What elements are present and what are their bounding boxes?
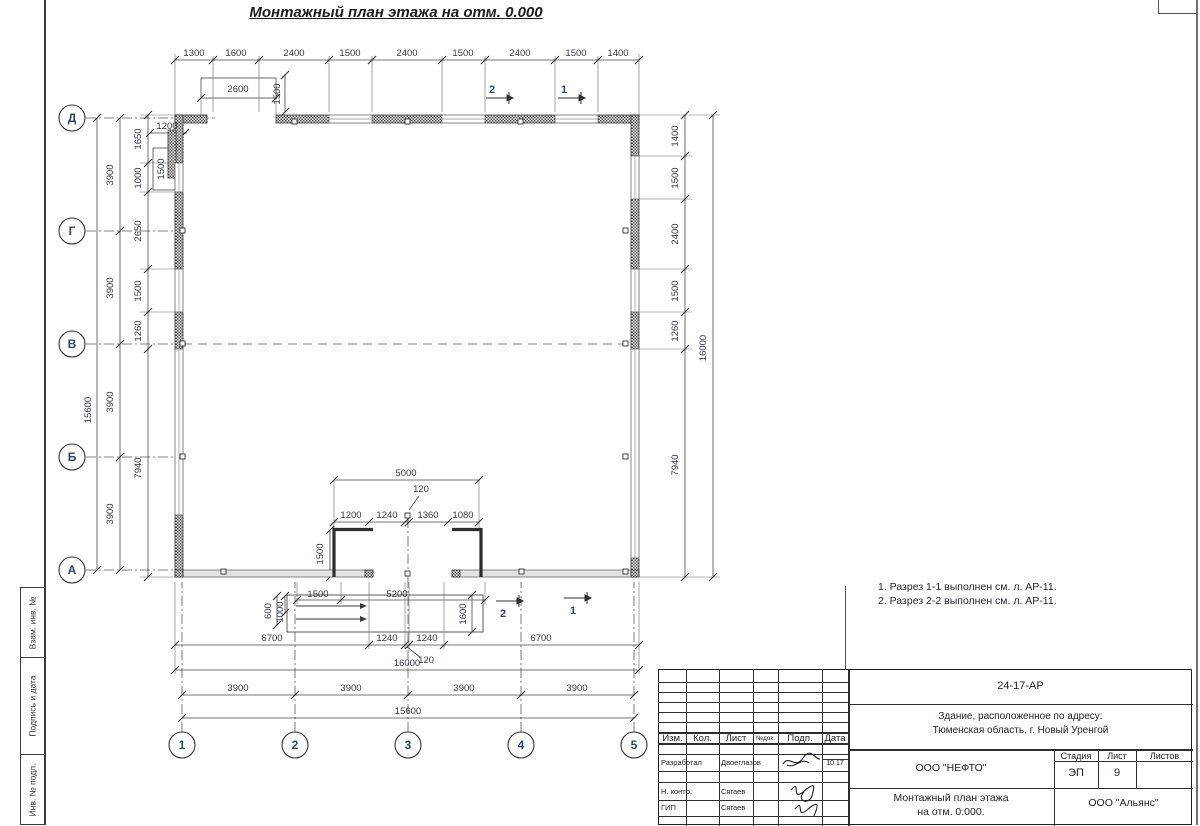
role-ncontrol: Н. контр.: [661, 787, 719, 796]
axis-bubble-label: В: [68, 337, 77, 351]
dim-label: 3900: [566, 683, 587, 694]
dim-label: 2400: [283, 48, 304, 59]
address-line1: Здание, расположенное по адресу:: [848, 711, 1193, 722]
dim-label: 15600: [83, 397, 94, 423]
dim-label: 1650: [133, 128, 144, 149]
dim-label: 3900: [105, 277, 116, 298]
stage-label: Стадия: [1054, 751, 1098, 761]
dim-label: 1200: [340, 510, 361, 521]
dim-label: 1500: [670, 280, 681, 301]
dim-label: 2400: [670, 223, 681, 244]
dim-label: 5000: [395, 468, 416, 479]
col-list: Лист: [719, 733, 753, 744]
dim-label: 1300: [183, 48, 204, 59]
sheets-label: Листов: [1136, 751, 1193, 761]
section-number: 1: [570, 605, 576, 617]
axis-bubble-label: 4: [518, 738, 525, 752]
col-data: Дата: [822, 733, 848, 744]
window-openings: [175, 115, 639, 558]
axis-bubble-label: А: [68, 563, 77, 577]
axis-bubbles: ДГВБА12345: [59, 105, 647, 758]
dim-label: 120: [413, 484, 429, 495]
dim-label: 3900: [105, 164, 116, 185]
dim-label: 2400: [509, 48, 530, 59]
title-block: Изм. Кол. Лист №док. Подп. Дата Разработ…: [658, 669, 1192, 825]
dim-label: 15600: [395, 706, 421, 717]
dim-label: 1500: [670, 167, 681, 188]
axis-bubble-label: 1: [179, 738, 186, 752]
walls: [168, 115, 639, 577]
dim-label: 1240: [376, 633, 397, 644]
section-number: 2: [500, 608, 506, 620]
dim-label: 16000: [394, 658, 420, 669]
dim-label: 2650: [133, 220, 144, 241]
dim-label: 1500: [272, 83, 283, 104]
col-izm: Изм.: [659, 733, 686, 744]
axis-lines: [86, 118, 634, 732]
dim-label: 1600: [225, 48, 246, 59]
dim-label: 2600: [227, 84, 248, 95]
strip-podpis-data: Подпись и дата: [20, 657, 45, 755]
address-line2: Тюменская область, г. Новый Уренгой: [848, 725, 1193, 736]
org: ООО "Альянс": [1054, 797, 1193, 809]
dim-label: 1600: [458, 603, 469, 624]
dim-label: 1260: [133, 320, 144, 341]
ramp-arrows: [296, 606, 360, 619]
role-gip: ГИП: [661, 803, 719, 812]
date-developed: 10.17: [822, 759, 848, 767]
dim-label: 3900: [105, 503, 116, 524]
dim-label: 1500: [156, 158, 167, 179]
doc-title-line2: на отм. 0.000.: [848, 806, 1054, 818]
col-kol: Кол.: [686, 733, 719, 744]
dim-label: 1260: [670, 320, 681, 341]
hatched-wall-segments: [168, 115, 639, 577]
dim-label: 1500: [565, 48, 586, 59]
note-line: 2. Разрез 2-2 выполнен см. л. АР-11.: [878, 594, 1057, 608]
drawing-sheet: { "title": "Монтажный план этажа на отм.…: [0, 0, 1200, 825]
section-number: 2: [489, 84, 495, 96]
role-developed: Разработал: [661, 758, 719, 767]
dim-label: 1000: [275, 601, 286, 622]
dim-label: 1000: [133, 167, 144, 188]
dim-label: 1500: [339, 48, 360, 59]
dim-label: 1500: [452, 48, 473, 59]
name-developed: Двоеглазов: [721, 758, 778, 767]
dim-label: 7940: [133, 457, 144, 478]
note-line: 1. Разрез 1-1 выполнен см. л. АР-11.: [878, 580, 1057, 594]
dim-label: 16000: [698, 335, 709, 361]
dim-label: 600: [263, 603, 274, 619]
dim-label: 1240: [376, 510, 397, 521]
dim-label: 1080: [452, 510, 473, 521]
section-number: 1: [561, 84, 567, 96]
dim-label: 1500: [133, 280, 144, 301]
dim-label: 1400: [670, 125, 681, 146]
dim-label: 3900: [105, 391, 116, 412]
strip-inv-podl: Инв. № подл.: [20, 754, 45, 825]
company: ООО "НЕФТО": [848, 762, 1054, 774]
dim-label: 1200: [156, 121, 177, 132]
dim-label: 1240: [416, 633, 437, 644]
dim-label: 3900: [453, 683, 474, 694]
strip-vzam-inv: Взам. инв. №: [20, 587, 45, 658]
dim-label: 1360: [417, 510, 438, 521]
axis-bubble-label: Б: [68, 450, 77, 464]
axis-bubble-label: 3: [405, 738, 412, 752]
col-podp: Подп.: [778, 733, 822, 744]
name-gip: Сягаев: [721, 803, 778, 812]
axis-bubble-label: 5: [631, 738, 638, 752]
section-numbers: 2121: [489, 84, 576, 620]
axis-bubble-label: Д: [68, 111, 77, 125]
dim-label: 2400: [396, 48, 417, 59]
section-marks: [486, 92, 591, 607]
doc-title-line1: Монтажный план этажа: [848, 792, 1054, 804]
dim-label: 1400: [607, 48, 628, 59]
dim-label: 1500: [307, 589, 328, 600]
sheet-label: Лист: [1098, 751, 1136, 761]
axis-bubble-label: 2: [292, 738, 299, 752]
dim-label: 3900: [227, 683, 248, 694]
dim-label: 6700: [261, 633, 282, 644]
dim-label: 6700: [530, 633, 551, 644]
name-ncontrol: Сягаев: [721, 787, 778, 796]
column-markers: [180, 119, 628, 576]
sheet-value: 9: [1098, 767, 1136, 779]
dim-label: 3900: [340, 683, 361, 694]
doc-code: 24-17-АР: [848, 680, 1193, 692]
notes: 1. Разрез 1-1 выполнен см. л. АР-11. 2. …: [878, 580, 1057, 608]
stage-value: ЭП: [1054, 767, 1098, 779]
dim-label: 7940: [670, 454, 681, 475]
dim-label: 120: [418, 655, 434, 666]
signatures: [779, 752, 823, 824]
dim-label: 1500: [315, 543, 326, 564]
porch: [287, 595, 483, 632]
dim-label: 5200: [386, 589, 407, 600]
axis-bubble-label: Г: [69, 224, 76, 238]
window-midlines: [179, 119, 635, 558]
col-ndok: №док.: [753, 735, 778, 742]
